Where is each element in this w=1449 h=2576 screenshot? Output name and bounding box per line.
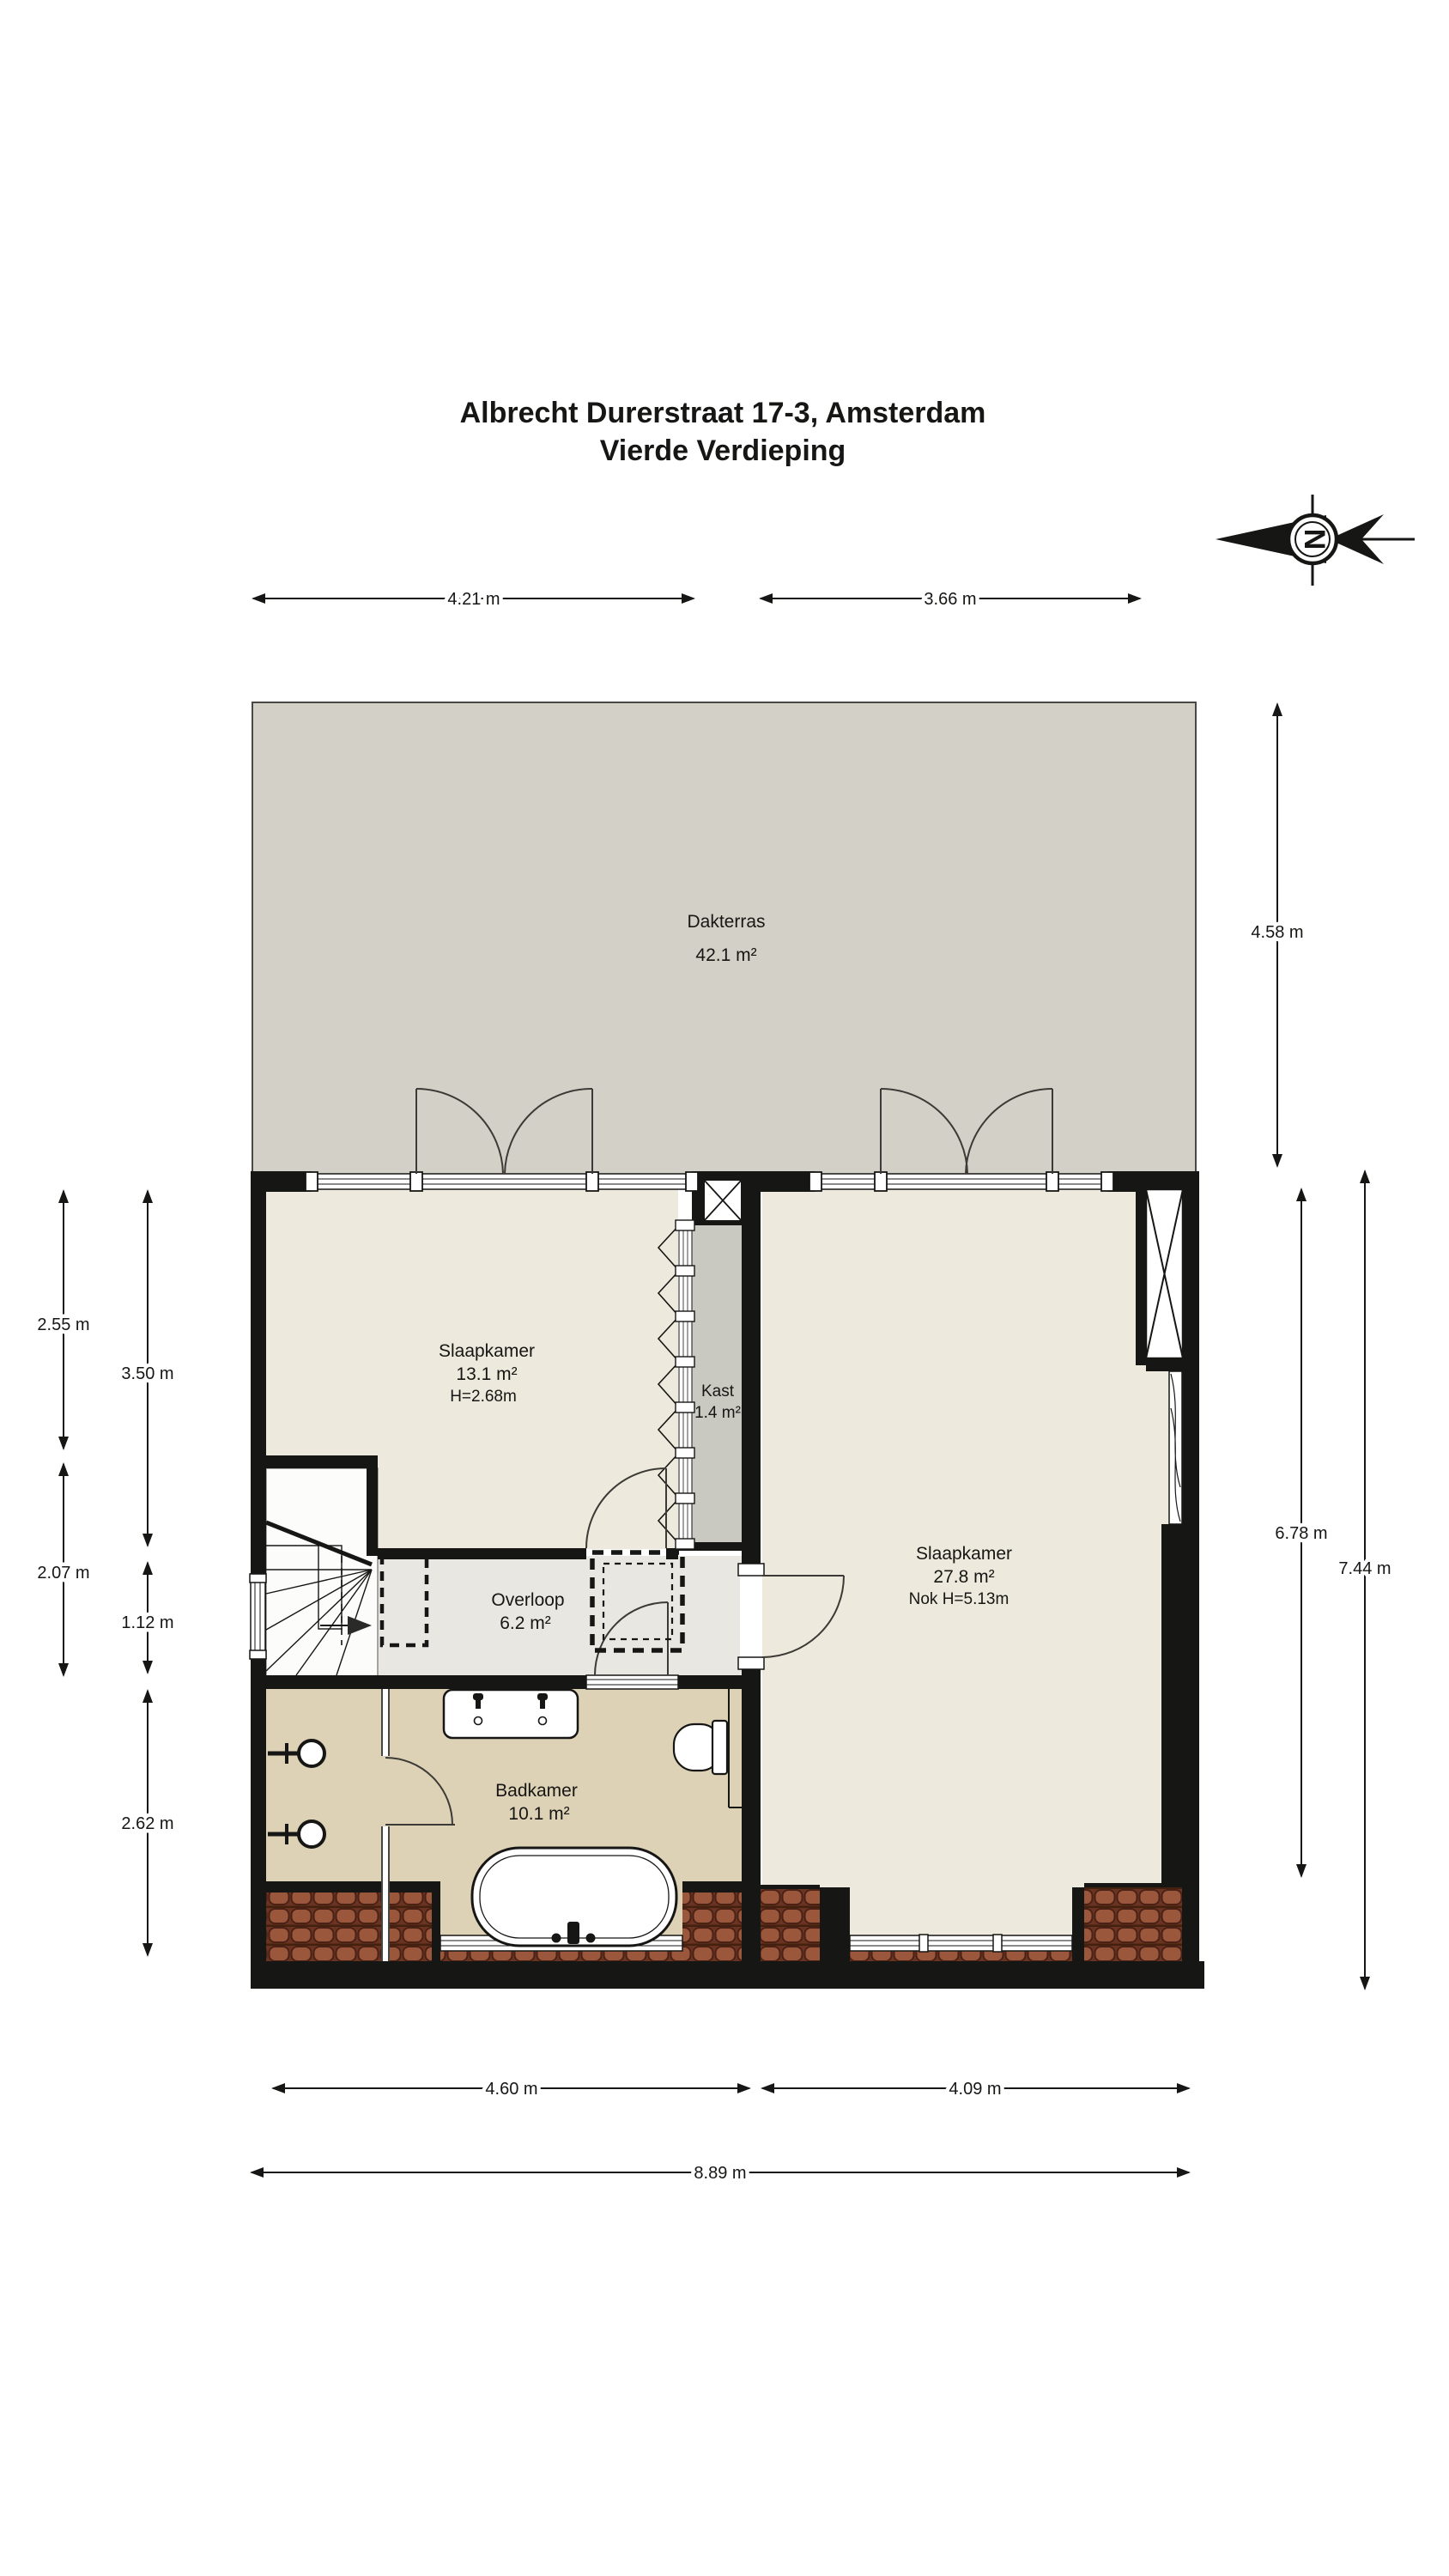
dimension-top-right: 3.66 m [761, 590, 1140, 609]
dimension-left-lower-inner: 2.62 m [121, 1691, 173, 1955]
svg-text:3.50 m: 3.50 m [121, 1364, 173, 1383]
svg-text:27.8 m²: 27.8 m² [933, 1567, 994, 1587]
svg-text:3.66 m: 3.66 m [924, 590, 976, 609]
window-north-right [809, 1172, 1113, 1191]
svg-text:6.78 m: 6.78 m [1275, 1524, 1327, 1543]
dimension-top-left: 4.21 m [253, 590, 694, 609]
svg-text:Nok H=5.13m: Nok H=5.13m [909, 1590, 1009, 1608]
svg-text:2.55 m: 2.55 m [37, 1315, 89, 1334]
dimension-left-lower-outer: 2.07 m [37, 1464, 89, 1675]
svg-text:13.1 m²: 13.1 m² [456, 1364, 517, 1384]
floorplan-drawing: Albrecht Durerstraat 17-3, Amsterdam Vie… [0, 0, 1449, 2576]
svg-text:Slaapkamer: Slaapkamer [439, 1341, 535, 1361]
dimension-bottom-right: 4.09 m [762, 2080, 1189, 2099]
floor-overloop [378, 1556, 748, 1676]
dimension-right-inner: 6.78 m [1275, 1189, 1327, 1876]
window-stairwell [250, 1574, 266, 1659]
svg-text:Slaapkamer: Slaapkamer [916, 1544, 1012, 1564]
svg-text:4.58 m: 4.58 m [1251, 923, 1303, 942]
window-right-wall [1169, 1371, 1182, 1524]
svg-text:4.21 m: 4.21 m [447, 590, 500, 609]
north-compass-icon: N [1216, 495, 1415, 586]
dimension-right-terrace: 4.58 m [1251, 704, 1303, 1166]
floor-slaapkamer-2 [762, 1188, 1182, 1941]
svg-text:Badkamer: Badkamer [495, 1781, 578, 1801]
svg-text:2.07 m: 2.07 m [37, 1564, 89, 1583]
svg-text:7.44 m: 7.44 m [1338, 1559, 1391, 1578]
svg-text:Kast: Kast [701, 1382, 735, 1400]
svg-text:4.09 m: 4.09 m [949, 2080, 1001, 2099]
dimension-left-upper-outer: 2.55 m [37, 1191, 89, 1449]
shaft-x-panel-top [704, 1180, 742, 1221]
svg-text:4.60 m: 4.60 m [485, 2080, 537, 2099]
floorplan-page: Albrecht Durerstraat 17-3, Amsterdam Vie… [0, 0, 1449, 2576]
title-line2: Vierde Verdieping [600, 434, 846, 467]
dimension-bottom-total: 8.89 m [252, 2164, 1189, 2183]
page-title: Albrecht Durerstraat 17-3, Amsterdam Vie… [460, 397, 986, 467]
dimension-left-middle-inner: 1.12 m [121, 1563, 173, 1673]
floors [266, 1188, 1182, 1952]
dimension-left-upper-inner: 3.50 m [121, 1191, 173, 1546]
bathtub [472, 1848, 676, 1946]
svg-text:H=2.68m: H=2.68m [450, 1388, 517, 1406]
svg-text:2.62 m: 2.62 m [121, 1814, 173, 1833]
partition-door-gap [380, 1756, 391, 1826]
double-washbasin [444, 1690, 578, 1738]
svg-text:6.2 m²: 6.2 m² [500, 1613, 551, 1633]
window-overloop-badkamer [586, 1675, 678, 1689]
svg-text:42.1 m²: 42.1 m² [695, 945, 756, 965]
title-line1: Albrecht Durerstraat 17-3, Amsterdam [460, 397, 986, 429]
window-slaapkamer2-south [850, 1935, 1072, 1952]
svg-text:8.89 m: 8.89 m [694, 2164, 746, 2183]
room-dakterras [252, 702, 1196, 1175]
window-north-left [306, 1172, 698, 1191]
dimension-right-outer: 7.44 m [1338, 1171, 1391, 1989]
shaft-x-panel-right [1146, 1189, 1183, 1358]
svg-text:10.1 m²: 10.1 m² [508, 1804, 569, 1824]
svg-text:Overloop: Overloop [491, 1590, 564, 1610]
svg-text:1.4 m²: 1.4 m² [694, 1404, 741, 1422]
svg-text:Dakterras: Dakterras [687, 912, 765, 932]
dimension-bottom-left: 4.60 m [273, 2080, 749, 2099]
svg-text:1.12 m: 1.12 m [121, 1613, 173, 1632]
north-letter: N [1298, 529, 1331, 550]
